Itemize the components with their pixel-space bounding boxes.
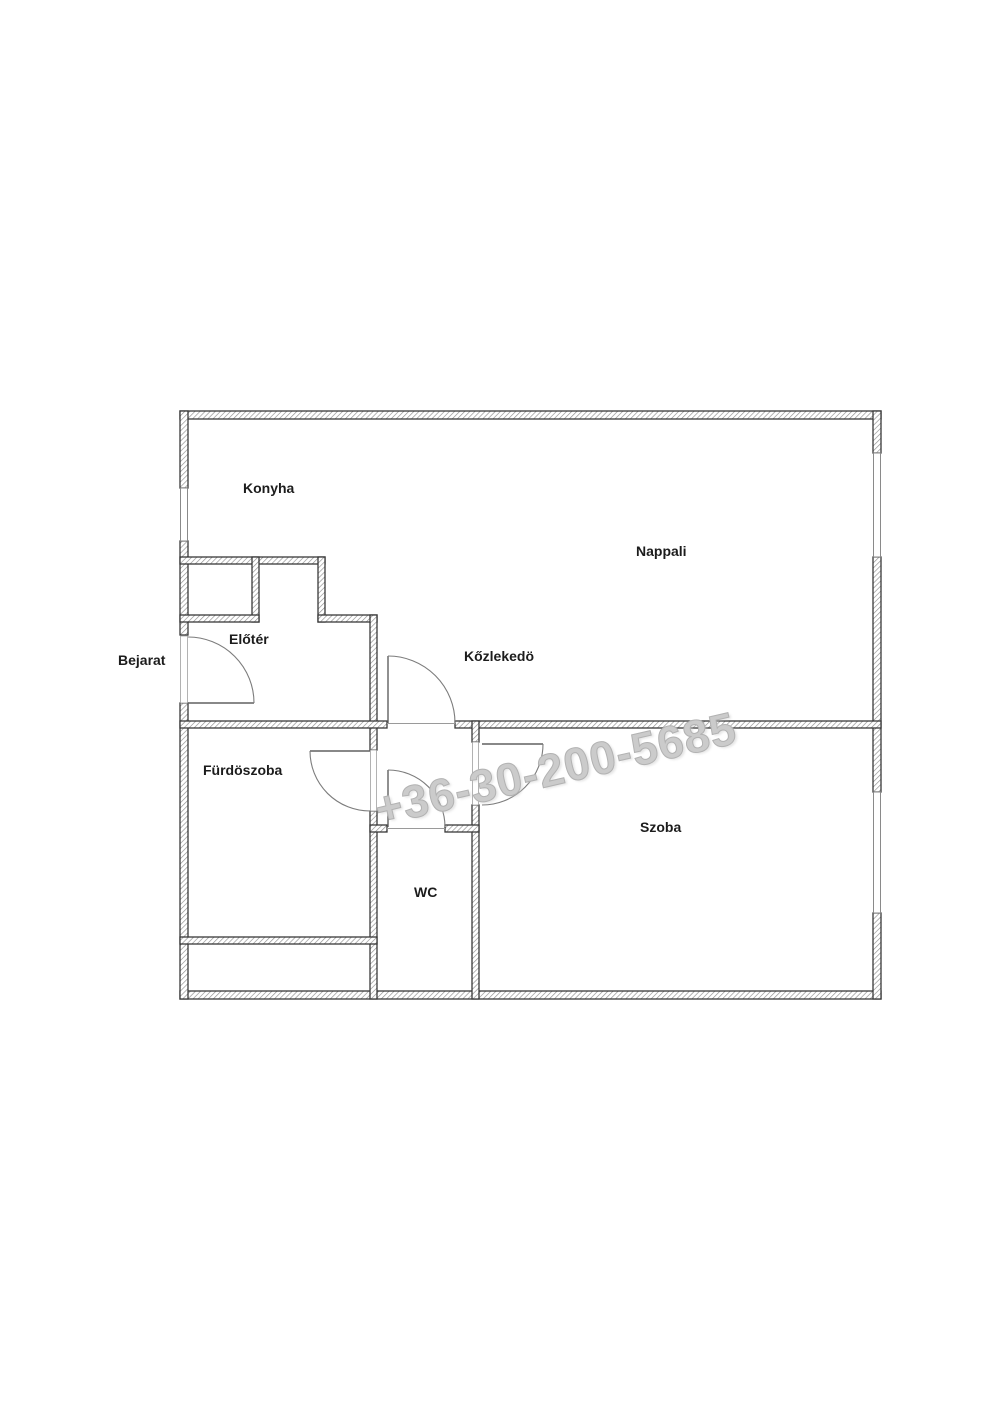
wall-szoba-left-upper — [472, 721, 479, 742]
wall-bottom — [180, 991, 881, 999]
room-label-furdoszoba: Fürdöszoba — [203, 763, 282, 778]
outer-walls — [180, 411, 881, 999]
room-label-konyha: Konyha — [243, 481, 294, 496]
corridor-door-swing — [388, 656, 455, 723]
opening-entrance — [181, 636, 188, 703]
room-label-eloter: Előtér — [229, 632, 269, 647]
wall-step-horizontal — [318, 615, 377, 622]
wall-left-lower — [180, 703, 188, 999]
wall-corridor-left — [180, 721, 387, 728]
room-label-wc: WC — [414, 885, 437, 900]
wall-closet-bottom — [180, 615, 259, 622]
room-label-kozlekedo: Kőzlekedö — [464, 649, 534, 664]
wall-divider-upper — [370, 615, 377, 750]
wall-bathroom-bottom — [180, 937, 377, 944]
wall-right-middle — [873, 557, 881, 792]
floorplan-page: Konyha Nappali Előtér Kőzlekedö Fürdöszo… — [0, 0, 1000, 1413]
wall-top — [180, 411, 881, 419]
wall-wc-top-right — [445, 825, 479, 832]
wall-step-vertical — [318, 557, 325, 622]
windows — [181, 453, 881, 913]
wall-right-lower — [873, 913, 881, 999]
floorplan-drawing — [0, 0, 1000, 1413]
entrance-label: Bejarat — [118, 653, 165, 668]
window-szoba-right — [874, 792, 881, 913]
window-nappali-right — [874, 453, 881, 557]
wall-divider-lower — [370, 811, 377, 999]
wall-left-upper — [180, 411, 188, 488]
window-konyha-left — [181, 488, 188, 541]
room-label-nappali: Nappali — [636, 544, 687, 559]
bathroom-door-swing — [310, 751, 370, 811]
wall-szoba-left-lower — [472, 805, 479, 999]
wall-right-upper — [873, 411, 881, 453]
room-label-szoba: Szoba — [640, 820, 681, 835]
wall-closet-right — [252, 557, 259, 622]
